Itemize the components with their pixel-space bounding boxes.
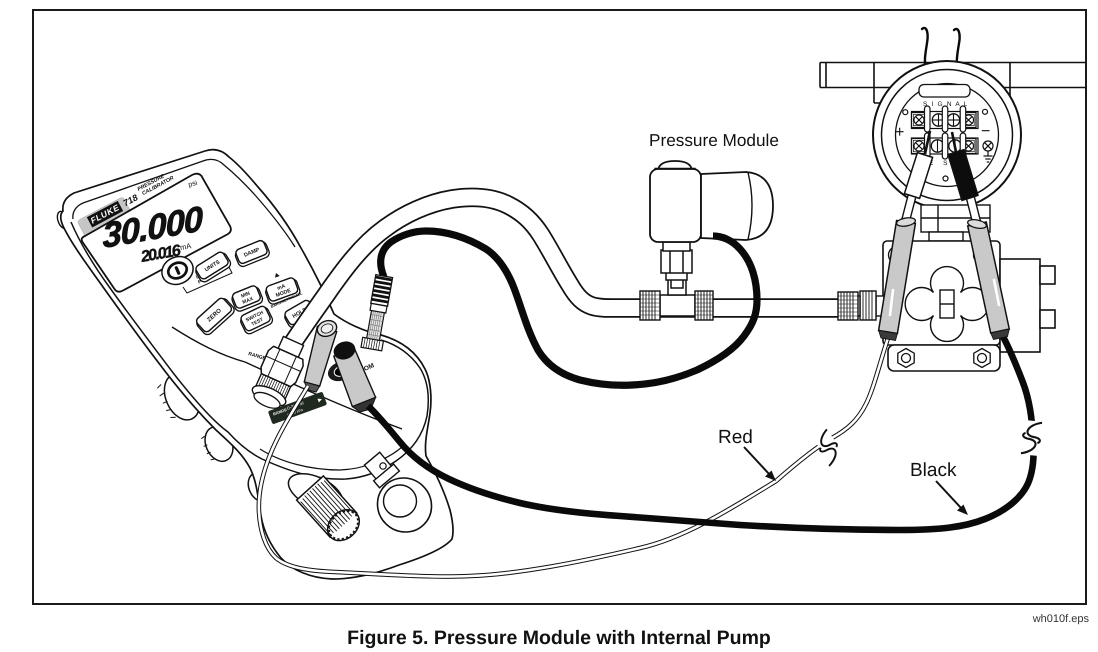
svg-text:wh010f.eps: wh010f.eps: [1032, 613, 1090, 625]
svg-text:Pressure Module: Pressure Module: [649, 130, 779, 150]
svg-text:+: +: [895, 124, 904, 141]
svg-text:E S: E S: [929, 160, 951, 167]
svg-text:Red: Red: [718, 427, 753, 448]
svg-text:Figure 5. Pressure Module with: Figure 5. Pressure Module with Internal …: [347, 627, 771, 649]
svg-text:mA: mA: [179, 241, 192, 252]
svg-text:−: −: [981, 123, 990, 140]
svg-text:Black: Black: [910, 460, 957, 481]
